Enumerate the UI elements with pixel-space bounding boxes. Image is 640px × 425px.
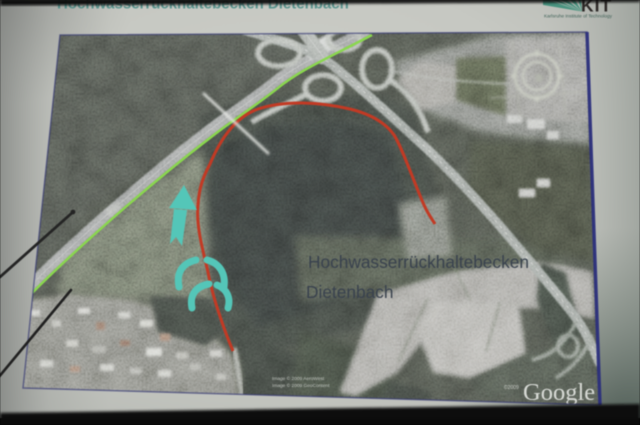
svg-text:©2009: ©2009 xyxy=(504,384,519,391)
svg-text:Dietenbach: Dietenbach xyxy=(306,282,393,302)
svg-text:Hochwasserrückhaltebecken: Hochwasserrückhaltebecken xyxy=(308,252,529,272)
svg-text:Google: Google xyxy=(523,379,595,406)
svg-text:Image © 2009 GeoContent: Image © 2009 GeoContent xyxy=(272,382,330,389)
svg-text:Image © 2009 AeroWest: Image © 2009 AeroWest xyxy=(272,375,325,382)
svg-text:Karlsruhe Institute of Technol: Karlsruhe Institute of Technology xyxy=(544,14,613,19)
